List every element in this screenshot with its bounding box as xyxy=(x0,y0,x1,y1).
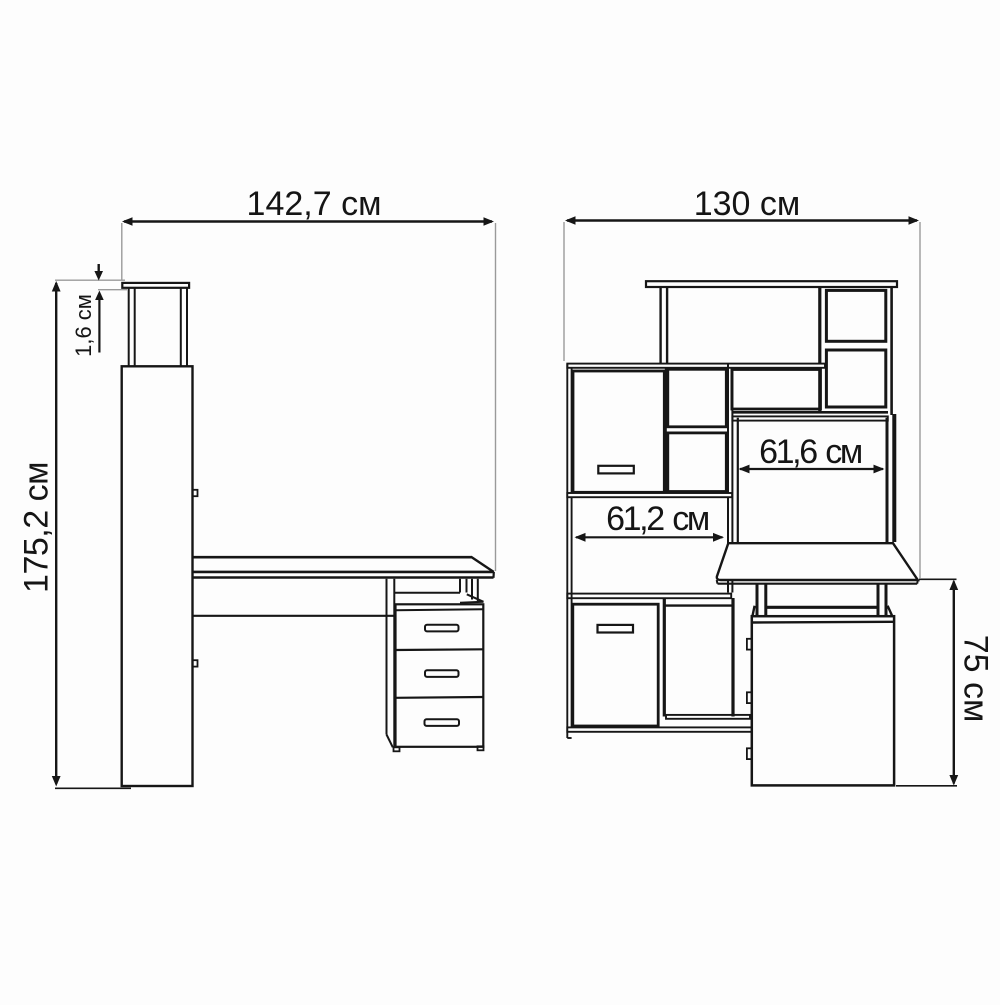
svg-text:130 см: 130 см xyxy=(694,185,801,223)
svg-text:61,6 см: 61,6 см xyxy=(759,433,862,471)
svg-text:61,2 см: 61,2 см xyxy=(606,500,709,538)
svg-text:142,7 см: 142,7 см xyxy=(247,185,382,223)
svg-text:75 см: 75 см xyxy=(957,635,995,723)
svg-text:1,6 см: 1,6 см xyxy=(71,294,96,357)
svg-text:175,2 см: 175,2 см xyxy=(18,462,56,593)
